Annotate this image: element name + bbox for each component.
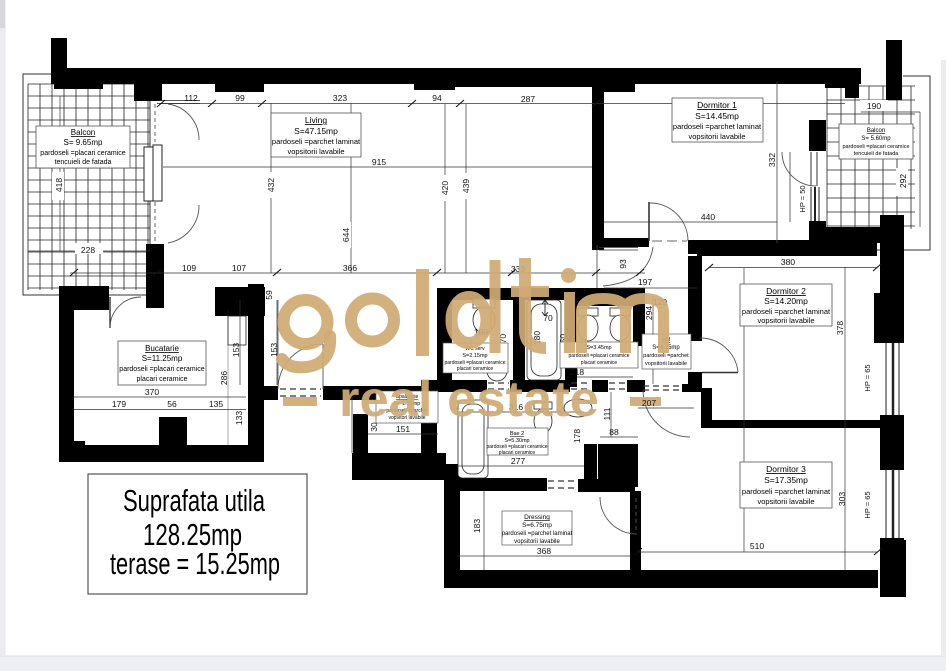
svg-text:pardoseli =placari ceramice: pardoseli =placari ceramice bbox=[842, 144, 909, 150]
svg-text:vopsitorii lavabile: vopsitorii lavabile bbox=[688, 132, 745, 141]
svg-text:S= 5.60mp: S= 5.60mp bbox=[861, 136, 891, 142]
svg-text:vopsitorii lavabile: vopsitorii lavabile bbox=[514, 539, 560, 545]
svg-text:pardoseli =parchet laminat: pardoseli =parchet laminat bbox=[742, 487, 831, 496]
svg-text:vopsitorii lavabile: vopsitorii lavabile bbox=[287, 147, 344, 156]
svg-text:286: 286 bbox=[219, 371, 229, 385]
svg-text:432: 432 bbox=[266, 178, 276, 192]
svg-text:Dressing: Dressing bbox=[524, 514, 550, 521]
svg-text:510: 510 bbox=[750, 541, 764, 551]
svg-text:pardoseli =parchet laminat: pardoseli =parchet laminat bbox=[742, 307, 831, 316]
svg-text:S=6.75mp: S=6.75mp bbox=[522, 522, 552, 529]
svg-text:915: 915 bbox=[372, 157, 386, 167]
svg-text:pardoseli =placari ceramice: pardoseli =placari ceramice bbox=[119, 366, 205, 373]
svg-text:S=11.25mp: S=11.25mp bbox=[142, 354, 183, 363]
svg-text:Bae 2: Bae 2 bbox=[510, 431, 524, 437]
svg-text:94: 94 bbox=[432, 93, 442, 103]
svg-text:70: 70 bbox=[543, 313, 553, 323]
svg-text:183: 183 bbox=[472, 519, 482, 533]
svg-text:Dormitor 3: Dormitor 3 bbox=[766, 464, 806, 474]
svg-text:real estate: real estate bbox=[339, 371, 599, 427]
svg-text:228: 228 bbox=[81, 245, 95, 255]
svg-text:93: 93 bbox=[618, 259, 628, 269]
svg-text:Balcon: Balcon bbox=[867, 128, 885, 134]
svg-text:vopsitorii lavabile: vopsitorii lavabile bbox=[645, 361, 687, 367]
svg-text:207: 207 bbox=[642, 398, 656, 408]
svg-text:303: 303 bbox=[837, 492, 847, 506]
svg-text:pardoseli =parchet: pardoseli =parchet bbox=[643, 353, 689, 359]
svg-text:294: 294 bbox=[644, 306, 654, 320]
svg-text:vopsitorii lavabile: vopsitorii lavabile bbox=[757, 316, 814, 325]
svg-text:378: 378 bbox=[835, 321, 845, 335]
svg-text:S=14.20mp: S=14.20mp bbox=[764, 296, 808, 306]
svg-text:111: 111 bbox=[602, 407, 612, 420]
svg-text:vopsitorii lavabile: vopsitorii lavabile bbox=[757, 497, 814, 506]
svg-text:placari ceramice: placari ceramice bbox=[499, 450, 536, 456]
svg-text:370: 370 bbox=[145, 387, 159, 397]
svg-text:109: 109 bbox=[182, 263, 196, 273]
svg-text:Balcon: Balcon bbox=[71, 128, 95, 137]
svg-text:S=2.15mp: S=2.15mp bbox=[462, 353, 487, 359]
svg-text:418: 418 bbox=[54, 178, 64, 192]
svg-text:197: 197 bbox=[638, 277, 652, 287]
svg-text:Living: Living bbox=[305, 115, 327, 125]
svg-text:323: 323 bbox=[333, 93, 347, 103]
svg-text:366: 366 bbox=[343, 263, 357, 273]
svg-text:Dormitor 2: Dormitor 2 bbox=[766, 286, 806, 296]
svg-text:190: 190 bbox=[867, 101, 881, 111]
svg-text:S= 9.65mp: S= 9.65mp bbox=[64, 138, 103, 147]
svg-text:368: 368 bbox=[537, 546, 551, 556]
svg-text:112: 112 bbox=[184, 93, 198, 103]
svg-text:Dormitor 1: Dormitor 1 bbox=[697, 100, 737, 110]
svg-text:Suprafata utila: Suprafata utila bbox=[123, 483, 266, 518]
svg-text:pardoseli =parchet laminat: pardoseli =parchet laminat bbox=[673, 122, 762, 131]
svg-text:135: 135 bbox=[209, 399, 223, 409]
svg-text:153: 153 bbox=[231, 343, 241, 357]
svg-text:S=17.35mp: S=17.35mp bbox=[764, 475, 808, 485]
svg-text:380: 380 bbox=[781, 257, 795, 267]
svg-text:HP = 50: HP = 50 bbox=[798, 185, 807, 212]
svg-text:178: 178 bbox=[572, 429, 582, 443]
svg-text:pardoseli =placari ceramice: pardoseli =placari ceramice bbox=[40, 150, 126, 157]
svg-text:439: 439 bbox=[461, 179, 471, 193]
svg-text:placari ceramice: placari ceramice bbox=[137, 376, 188, 383]
svg-text:S=14.45mp: S=14.45mp bbox=[695, 111, 739, 121]
svg-text:tencuieli de fatada: tencuieli de fatada bbox=[55, 159, 112, 166]
svg-text:179: 179 bbox=[112, 399, 126, 409]
svg-text:56: 56 bbox=[167, 399, 177, 409]
svg-text:332: 332 bbox=[767, 153, 777, 167]
svg-text:420: 420 bbox=[440, 181, 450, 195]
svg-text:292: 292 bbox=[898, 174, 908, 188]
svg-text:pardoseli =parchet laminat: pardoseli =parchet laminat bbox=[502, 531, 573, 537]
svg-text:pardoseli =parchet laminat: pardoseli =parchet laminat bbox=[272, 137, 361, 146]
svg-text:277: 277 bbox=[511, 456, 525, 466]
svg-text:153: 153 bbox=[269, 343, 279, 357]
svg-text:287: 287 bbox=[521, 94, 535, 104]
svg-text:S=3.45mp: S=3.45mp bbox=[586, 345, 611, 351]
svg-text:644: 644 bbox=[341, 228, 351, 242]
svg-text:133: 133 bbox=[234, 411, 244, 425]
svg-text:pardoseli =placari ceramice: pardoseli =placari ceramice bbox=[568, 353, 629, 359]
svg-text:placari ceramice: placari ceramice bbox=[581, 360, 618, 366]
svg-text:99: 99 bbox=[235, 93, 245, 103]
svg-text:HP = 65: HP = 65 bbox=[863, 491, 872, 518]
svg-text:Bucatarie: Bucatarie bbox=[145, 344, 179, 353]
svg-text:59: 59 bbox=[264, 290, 274, 300]
svg-text:tencuieli de fatada: tencuieli de fatada bbox=[854, 151, 900, 157]
svg-text:107: 107 bbox=[232, 263, 246, 273]
svg-text:88: 88 bbox=[609, 427, 619, 437]
svg-text:S=47.15mp: S=47.15mp bbox=[294, 126, 338, 136]
svg-text:HP = 65: HP = 65 bbox=[863, 364, 872, 391]
svg-text:440: 440 bbox=[701, 212, 715, 222]
svg-text:terase = 15.25mp: terase = 15.25mp bbox=[110, 546, 280, 581]
